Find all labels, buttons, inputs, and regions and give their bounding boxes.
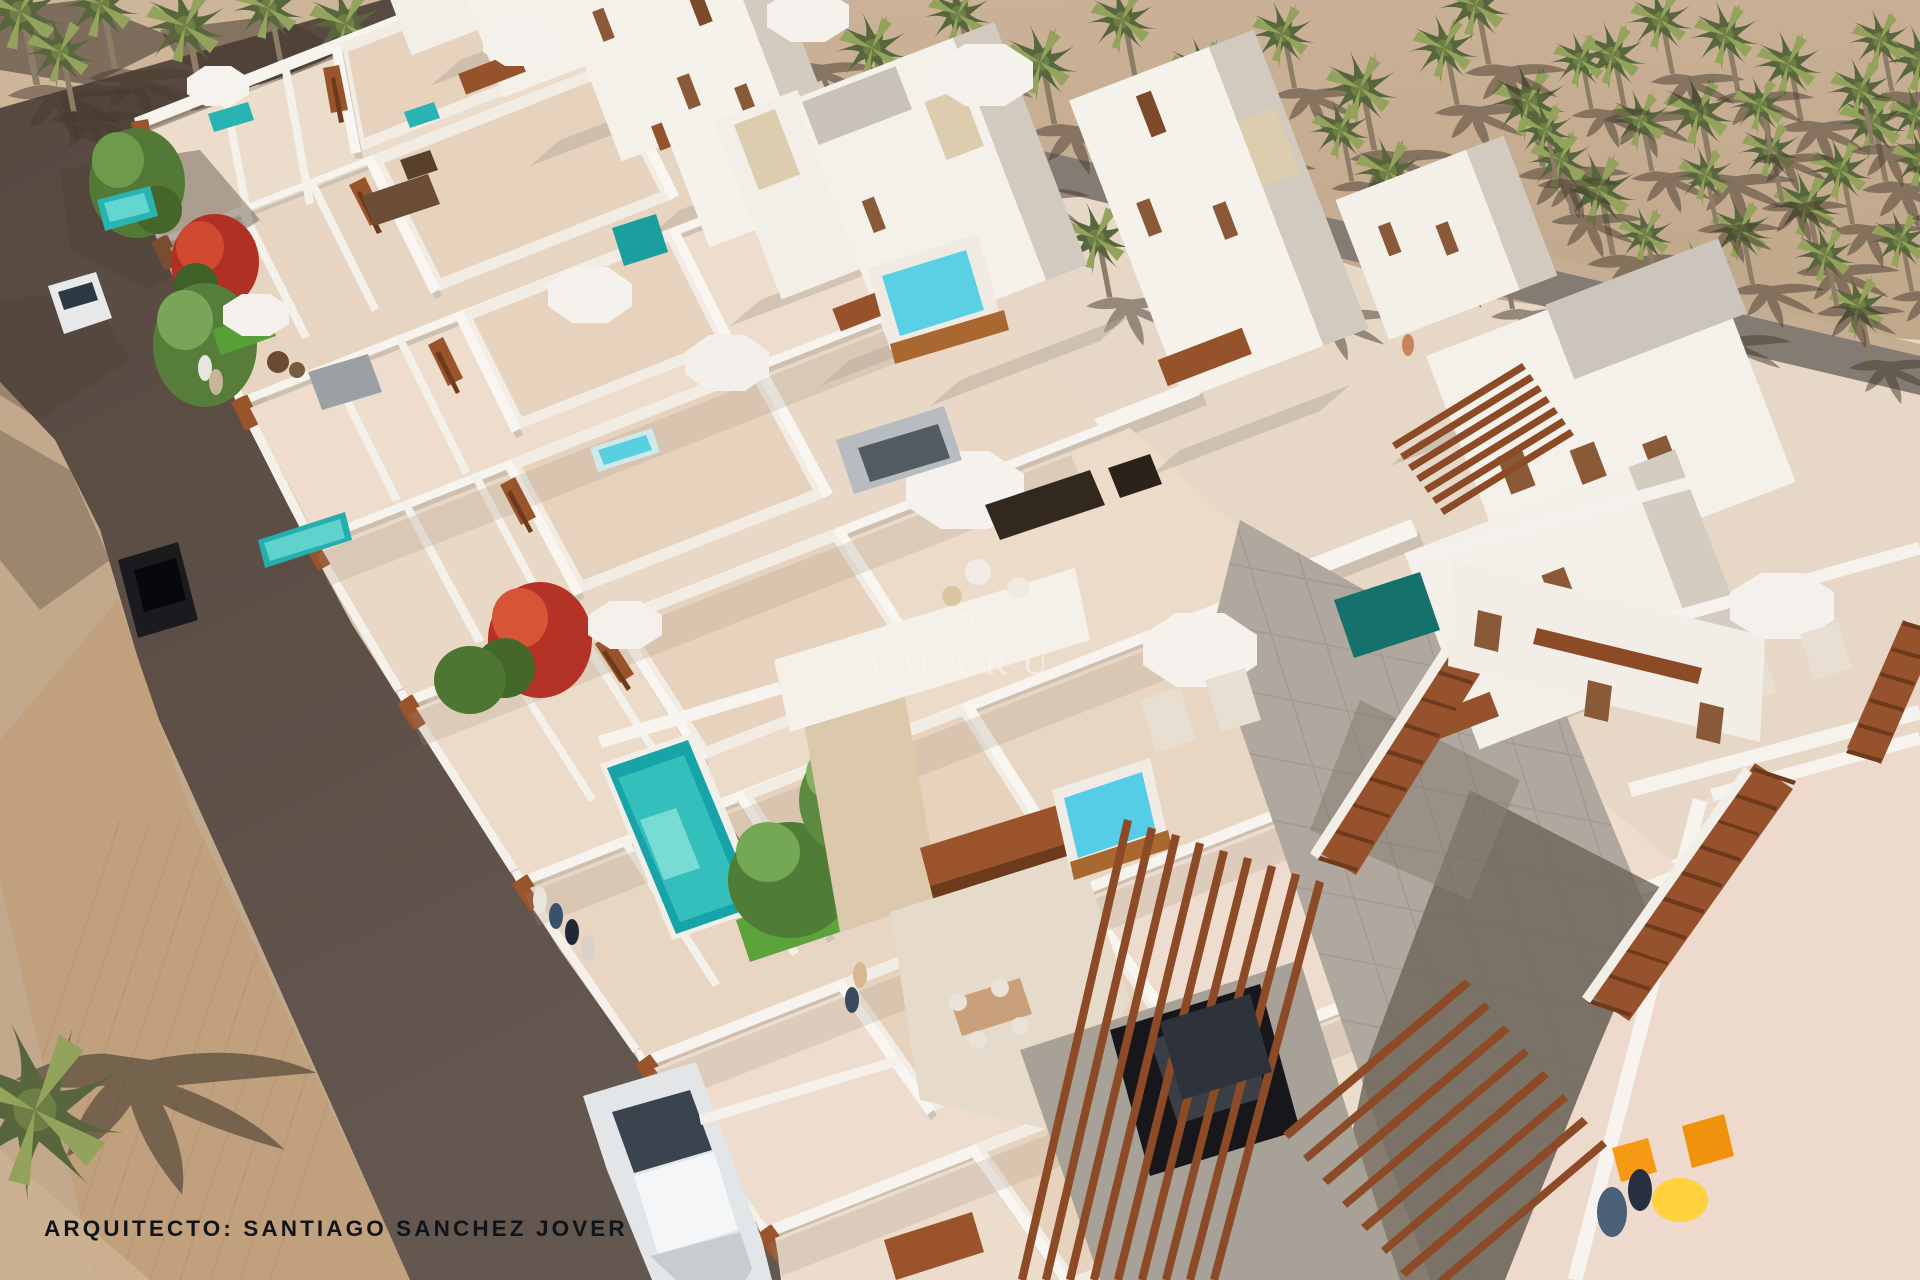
svg-text:AMARU: AMARU xyxy=(857,643,1062,682)
svg-text:ARQUITECTO: SANTIAGO SANCHEZ J: ARQUITECTO: SANTIAGO SANCHEZ JOVER xyxy=(44,1216,628,1241)
